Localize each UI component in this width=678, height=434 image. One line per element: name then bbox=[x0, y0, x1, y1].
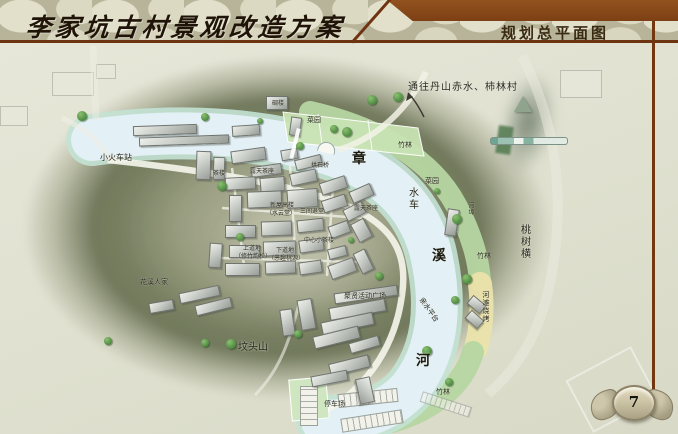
route-annotation: 通往丹山赤水、柿林村 bbox=[408, 78, 518, 93]
right-vertical-rule bbox=[652, 21, 655, 395]
slide-title: 李家坑古村景观改造方案 bbox=[24, 8, 347, 44]
village-building bbox=[261, 220, 293, 236]
tree-icon bbox=[367, 95, 377, 105]
tree-icon bbox=[330, 125, 338, 133]
tree-icon bbox=[104, 337, 112, 345]
tree-icon bbox=[375, 272, 383, 280]
section-title: 规划总平面图 bbox=[465, 22, 645, 43]
village-building bbox=[225, 176, 257, 191]
village-building bbox=[225, 263, 260, 276]
map-label: 碉楼 bbox=[272, 100, 284, 106]
village-building bbox=[232, 124, 261, 137]
tree-icon bbox=[445, 378, 453, 386]
tree-icon bbox=[434, 188, 440, 194]
map-label: 菜园 bbox=[307, 116, 321, 123]
map-label: （修竹韵松） bbox=[235, 253, 271, 259]
tree-icon bbox=[201, 113, 209, 121]
map-label: 竹林 bbox=[477, 252, 491, 259]
village-building bbox=[229, 195, 242, 222]
tree-icon bbox=[393, 92, 403, 102]
distant-building bbox=[96, 64, 116, 79]
tree-icon bbox=[236, 233, 244, 241]
map-label: 茶楼 bbox=[213, 170, 225, 176]
map-label: 花溪人家 bbox=[140, 278, 168, 285]
map-label: 河 bbox=[416, 354, 430, 369]
tree-icon bbox=[451, 296, 459, 304]
tree-icon bbox=[257, 118, 263, 124]
map-label: 竹林 bbox=[398, 141, 412, 148]
village-building bbox=[208, 243, 223, 269]
map-label: 菜园 bbox=[425, 177, 439, 184]
north-arrow-icon bbox=[514, 96, 532, 112]
tree-icon bbox=[217, 181, 227, 191]
tree-icon bbox=[296, 142, 304, 150]
map-label: 新屋高楼 bbox=[270, 202, 294, 208]
map-label: 河埠 bbox=[468, 202, 474, 216]
map-label: 桃树横 bbox=[518, 224, 529, 260]
tree-icon bbox=[342, 127, 352, 137]
map-label: 中心小茶楼 bbox=[304, 237, 334, 243]
map-label: 竹林 bbox=[436, 388, 450, 395]
map-label: 上道地 bbox=[243, 245, 261, 251]
map-label: 停车场 bbox=[324, 400, 345, 407]
presentation-slide: 李家坑古村景观改造方案 规划总平面图 通往丹 bbox=[0, 0, 678, 434]
map-label: 露天茶座 bbox=[354, 205, 378, 211]
map-label: 坟头山 bbox=[238, 343, 268, 354]
map-label: 下道地 bbox=[276, 247, 294, 253]
tree-icon bbox=[294, 330, 302, 338]
map-label: 露天茶座 bbox=[250, 168, 274, 174]
map-label: 小火车站 bbox=[100, 154, 132, 162]
map-label: （愚趣桃源） bbox=[268, 255, 304, 261]
tree-icon bbox=[348, 237, 354, 243]
map-label: 河滩烧烤 bbox=[482, 291, 489, 323]
scale-bar bbox=[490, 137, 568, 145]
tree-icon bbox=[462, 274, 472, 284]
parking-lot bbox=[300, 386, 318, 426]
distant-building bbox=[52, 72, 94, 96]
tree-icon bbox=[226, 339, 236, 349]
map-label: 聚贤活动广场 bbox=[344, 292, 386, 299]
map-label: （水云堂） bbox=[266, 210, 296, 216]
distant-building bbox=[0, 106, 28, 126]
page-number: 7 bbox=[614, 393, 654, 411]
tree-icon bbox=[452, 214, 462, 224]
map-label: 章 bbox=[352, 152, 366, 167]
stone-cartouche-icon: 7 bbox=[612, 385, 656, 421]
page-number-emblem: 7 bbox=[592, 383, 672, 423]
tree-icon bbox=[77, 111, 87, 121]
header-brown-band bbox=[378, 0, 678, 21]
map-label: 拱石桥 bbox=[311, 162, 329, 168]
map-label: 三间退堂 bbox=[300, 208, 324, 214]
map-label: 水车 bbox=[406, 187, 417, 211]
tree-icon bbox=[201, 339, 209, 347]
map-label: 溪 bbox=[432, 249, 446, 264]
header-diagonal-rule bbox=[351, 0, 392, 43]
village-building bbox=[213, 157, 226, 180]
village-building bbox=[265, 260, 296, 274]
village-building bbox=[195, 151, 211, 181]
